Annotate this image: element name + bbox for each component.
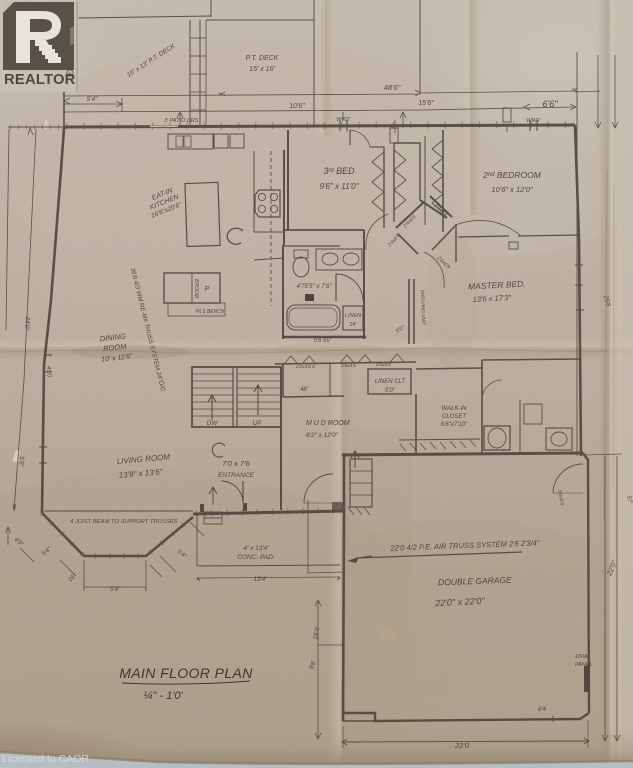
svg-text:9'6" x 11'0": 9'6" x 11'0"	[320, 182, 360, 191]
svg-text:4 JOIST BEAM TO SUPPORT TRUSSE: 4 JOIST BEAM TO SUPPORT TRUSSES	[70, 519, 178, 525]
svg-text:15'6": 15'6"	[418, 100, 434, 107]
svg-text:45'0: 45'0	[45, 366, 52, 378]
svg-text:5'6 5V: 5'6 5V	[314, 338, 332, 344]
svg-text:WW2: WW2	[526, 118, 539, 124]
svg-text:LINEN CLT: LINEN CLT	[375, 379, 407, 385]
svg-text:LINEN: LINEN	[345, 313, 361, 319]
svg-text:4' x 13'4': 4' x 13'4'	[243, 545, 269, 552]
svg-text:DW: DW	[207, 420, 219, 427]
svg-text:WALK-IN: WALK-IN	[442, 406, 468, 412]
svg-text:6'6": 6'6"	[543, 99, 559, 109]
svg-text:MAIN FLOOR PLAN: MAIN FLOOR PLAN	[119, 665, 253, 681]
svg-text:CONC. PAD.: CONC. PAD.	[237, 554, 275, 561]
svg-text:15' x 16': 15' x 16'	[249, 66, 275, 73]
svg-text:5'4": 5'4"	[87, 96, 98, 103]
svg-text:ENTRANCE: ENTRANCE	[218, 472, 254, 479]
svg-text:48'6": 48'6"	[384, 83, 401, 92]
svg-text:5'0x6'8: 5'0x6'8	[376, 362, 391, 368]
svg-text:¼" - 1'0': ¼" - 1'0'	[143, 690, 183, 702]
svg-text:2'6x4'6: 2'6x4'6	[340, 363, 356, 369]
svg-text:48': 48'	[300, 387, 309, 393]
svg-text:REALTOR: REALTOR	[4, 72, 76, 88]
svg-text:8'2" x 12'0": 8'2" x 12'0"	[306, 432, 339, 439]
svg-text:PLS BENCH: PLS BENCH	[196, 309, 225, 315]
svg-text:UP: UP	[252, 420, 262, 427]
svg-text:24': 24'	[348, 322, 357, 328]
svg-text:5'4": 5'4"	[110, 586, 121, 593]
svg-text:CLOSET: CLOSET	[442, 414, 467, 420]
svg-text:3rd BED: 3rd BED	[323, 166, 355, 176]
svg-text:5'6": 5'6"	[17, 456, 25, 468]
svg-text:M U D ROOM: M U D ROOM	[306, 420, 350, 427]
svg-text:6'6"x7'10": 6'6"x7'10"	[441, 422, 468, 428]
svg-text:100A: 100A	[575, 654, 588, 660]
svg-text:P: P	[205, 286, 210, 293]
svg-text:BROOM: BROOM	[193, 279, 199, 299]
svg-text:2'2x4'6 8: 2'2x4'6 8	[295, 364, 315, 370]
svg-text:13'4': 13'4'	[253, 576, 267, 583]
svg-text:WW2: WW2	[336, 117, 349, 123]
svg-text:8'4: 8'4	[538, 707, 546, 713]
svg-text:7'0 x 7'6: 7'0 x 7'6	[222, 459, 250, 468]
svg-text:10'6" x 12'0": 10'6" x 12'0"	[491, 185, 532, 194]
svg-text:4'75'5" x 7'6": 4'75'5" x 7'6"	[296, 283, 332, 290]
svg-text:22'0: 22'0	[454, 741, 470, 750]
svg-text:PANEL: PANEL	[575, 662, 593, 668]
svg-text:P.T. DECK: P.T. DECK	[246, 55, 279, 62]
svg-text:Licensed to CAOR: Licensed to CAOR	[2, 753, 89, 765]
svg-text:34'0": 34'0"	[23, 316, 31, 332]
svg-text:5'0": 5'0"	[385, 388, 396, 394]
svg-text:10'6": 10'6"	[289, 103, 305, 110]
svg-text:3' PATIO DRS: 3' PATIO DRS	[164, 118, 199, 124]
